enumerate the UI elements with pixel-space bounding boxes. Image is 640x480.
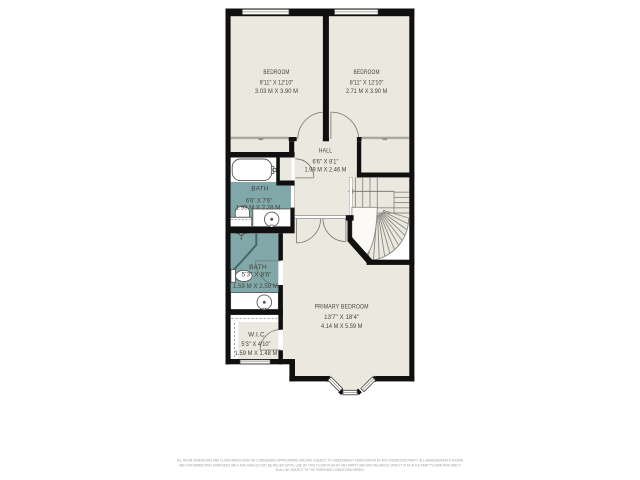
svg-text:1.59 M X 1.48 M: 1.59 M X 1.48 M xyxy=(235,351,278,357)
svg-text:BEDROOM: BEDROOM xyxy=(263,69,289,76)
svg-text:BEDROOM: BEDROOM xyxy=(354,69,380,76)
svg-text:3.03 M X 3.90 M: 3.03 M X 3.90 M xyxy=(255,89,298,95)
svg-text:1.59 M X 2.59 M: 1.59 M X 2.59 M xyxy=(233,284,278,290)
svg-text:13'7" X 18'4": 13'7" X 18'4" xyxy=(324,315,359,321)
svg-text:SHALL BE SUBJECT TO THE TERMS: SHALL BE SUBJECT TO THE TERMS AND CONDIT… xyxy=(276,468,365,472)
svg-text:ARE FOR MARKETING PURPOSES ONL: ARE FOR MARKETING PURPOSES ONLY AND SHOU… xyxy=(179,464,462,468)
svg-text:5'3" X 8'6": 5'3" X 8'6" xyxy=(242,273,272,279)
svg-text:1.99 M X 2.46 M: 1.99 M X 2.46 M xyxy=(305,168,347,174)
svg-text:BATH: BATH xyxy=(251,185,268,192)
svg-text:6'6" X 7'6": 6'6" X 7'6" xyxy=(246,199,273,205)
svg-text:W.I.C.: W.I.C. xyxy=(248,332,267,339)
svg-text:2.71 M X 3.90 M: 2.71 M X 3.90 M xyxy=(346,89,387,95)
svg-text:BATH: BATH xyxy=(249,264,267,271)
svg-text:6'6" X 8'1": 6'6" X 8'1" xyxy=(313,159,339,165)
svg-text:1.99 M X 2.28 M: 1.99 M X 2.28 M xyxy=(236,206,281,212)
svg-text:5'3" X 4'10": 5'3" X 4'10" xyxy=(241,342,270,348)
svg-text:HALL: HALL xyxy=(319,148,333,155)
svg-text:8'11" X 12'10": 8'11" X 12'10" xyxy=(350,80,384,86)
svg-text:ALL ROOM DIMENSIONS AND FLOOR: ALL ROOM DIMENSIONS AND FLOOR AREAS MUST… xyxy=(177,458,463,462)
svg-text:9'11" X 12'10": 9'11" X 12'10" xyxy=(260,80,294,86)
svg-text:PRIMARY BEDROOM: PRIMARY BEDROOM xyxy=(315,303,369,310)
svg-text:4.14 M X 5.59 M: 4.14 M X 5.59 M xyxy=(321,324,362,330)
